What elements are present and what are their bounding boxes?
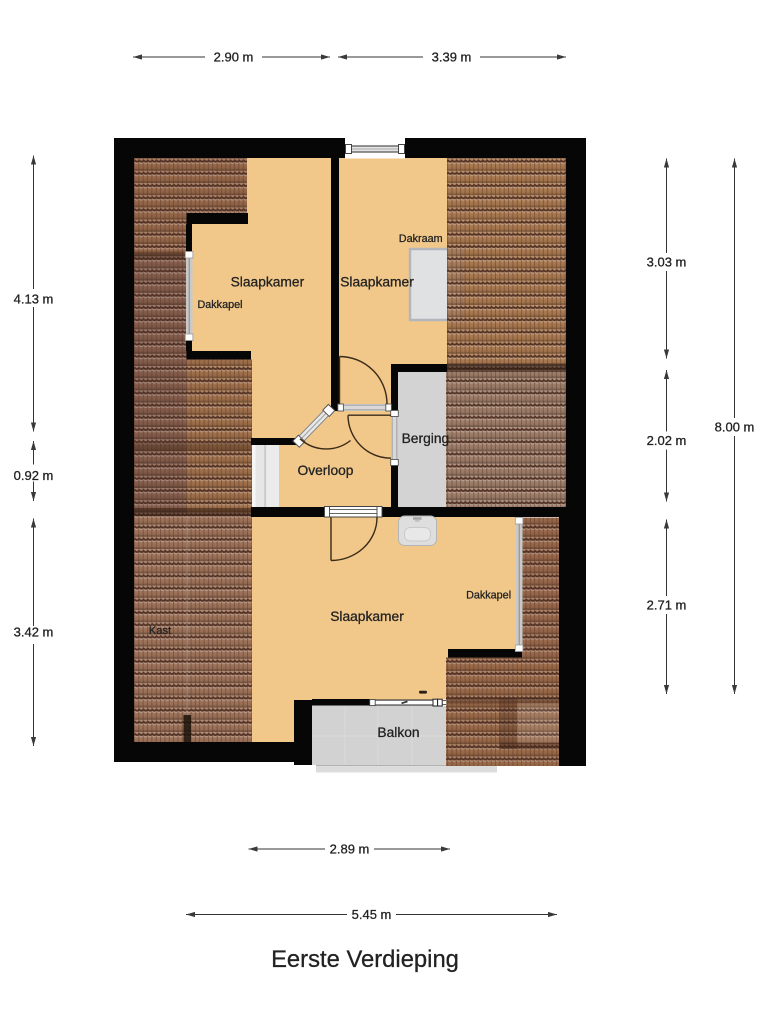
svg-text:Eerste Verdieping: Eerste Verdieping: [271, 946, 459, 973]
svg-text:Dakkapel: Dakkapel: [466, 590, 511, 602]
svg-text:Kast: Kast: [149, 625, 172, 637]
svg-text:0.92 m: 0.92 m: [14, 468, 54, 483]
svg-text:3.03 m: 3.03 m: [647, 255, 687, 270]
svg-text:2.90 m: 2.90 m: [214, 50, 254, 65]
svg-text:Dakraam: Dakraam: [399, 233, 443, 245]
svg-text:5.45 m: 5.45 m: [352, 907, 392, 922]
svg-text:Dakkapel: Dakkapel: [197, 299, 242, 311]
svg-text:2.02 m: 2.02 m: [647, 433, 687, 448]
svg-text:Berging: Berging: [402, 431, 450, 446]
svg-text:2.71 m: 2.71 m: [647, 598, 687, 613]
svg-text:3.42 m: 3.42 m: [14, 625, 54, 640]
svg-text:2.89 m: 2.89 m: [330, 842, 370, 857]
svg-text:3.39 m: 3.39 m: [432, 50, 472, 65]
svg-text:Slaapkamer: Slaapkamer: [340, 274, 414, 289]
svg-text:Slaapkamer: Slaapkamer: [330, 609, 404, 624]
svg-text:8.00 m: 8.00 m: [715, 420, 755, 435]
svg-text:Slaapkamer: Slaapkamer: [231, 274, 305, 289]
svg-text:4.13 m: 4.13 m: [14, 292, 54, 307]
svg-text:Balkon: Balkon: [377, 725, 419, 740]
svg-text:Overloop: Overloop: [298, 463, 354, 478]
